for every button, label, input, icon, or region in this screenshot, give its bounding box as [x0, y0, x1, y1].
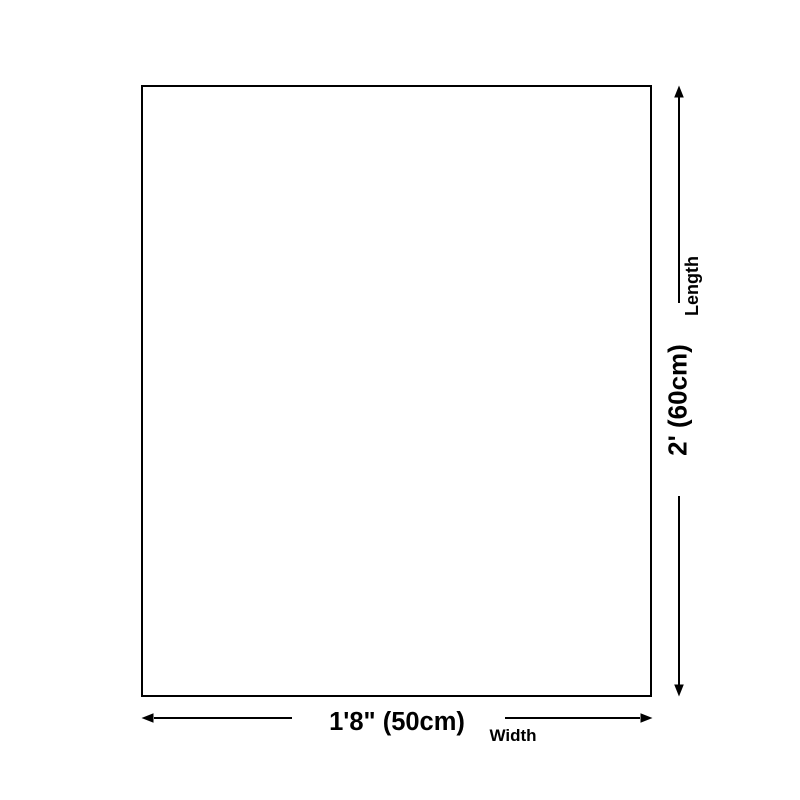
svg-text:Length: Length [682, 256, 702, 316]
svg-text:Width: Width [489, 726, 536, 745]
svg-text:1'8" (50cm): 1'8" (50cm) [329, 708, 465, 736]
svg-text:2' (60cm): 2' (60cm) [663, 344, 693, 456]
